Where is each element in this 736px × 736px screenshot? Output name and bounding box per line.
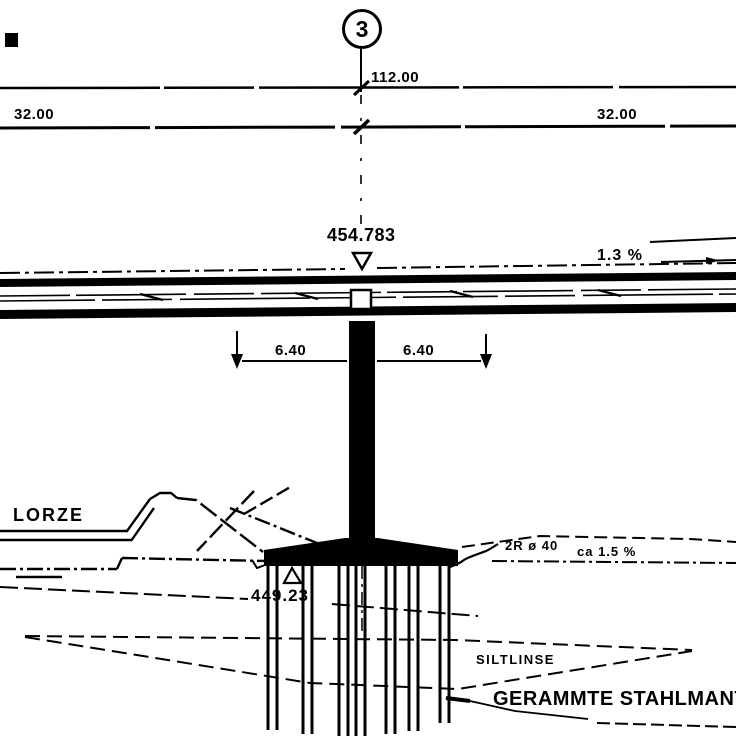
dim-span-right: 32.00	[597, 107, 637, 122]
pile-cap	[252, 538, 498, 568]
axis-marker: 3	[342, 9, 382, 49]
drawing-sheet: 3 112.00 32.00 32.00 454.783 1.3 % 6.40 …	[0, 0, 736, 736]
dim-span-left: 32.00	[14, 107, 54, 122]
pier-shaft	[349, 321, 375, 549]
elevation-marker-deck	[353, 253, 371, 269]
pipe-slope: ca 1.5 %	[577, 545, 636, 558]
deck-top-flange	[0, 272, 736, 287]
slope-arrow-line	[661, 260, 736, 262]
dim-pier-left: 6.40	[275, 343, 306, 358]
rail-line-right	[650, 238, 736, 242]
river-label: LORZE	[13, 506, 84, 524]
deck-elevation: 454.783	[327, 226, 396, 244]
elevation-marker-foundation	[284, 568, 301, 583]
piles-label: GERAMMTE STAHLMANT	[493, 689, 736, 709]
dimension-chain	[0, 46, 736, 251]
pipe-note: 2R ø 40	[505, 539, 558, 552]
dim-pier-right: 6.40	[403, 343, 434, 358]
bearing-block	[351, 290, 371, 309]
deck-girder	[0, 272, 736, 319]
foundation-elevation: 449.23	[251, 587, 309, 604]
dim-total: 112.00	[371, 70, 419, 85]
silt-lens-top	[25, 636, 692, 650]
silt-lens-label: SILTLINSE	[476, 653, 555, 666]
scan-artifact	[5, 33, 18, 47]
silt-lens-bottom	[25, 637, 692, 689]
deck-slope: 1.3 %	[597, 248, 643, 264]
subsoil-lines	[0, 587, 692, 689]
axis-number: 3	[356, 16, 369, 43]
